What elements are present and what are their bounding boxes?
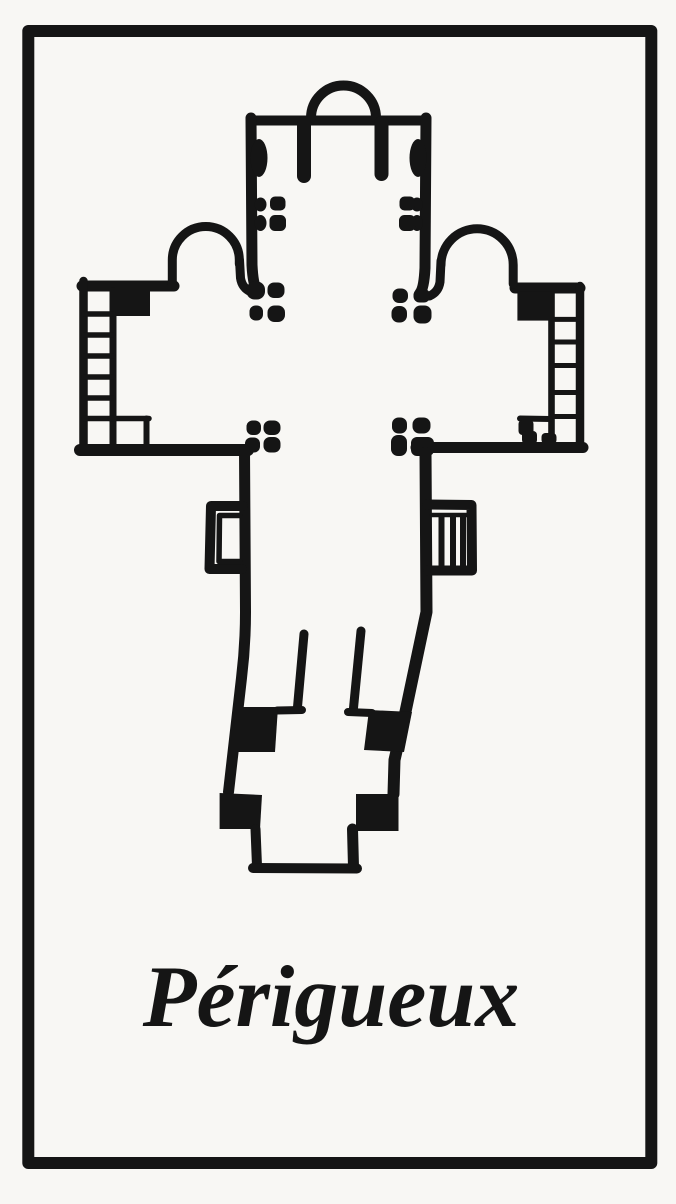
svg-text:Périgueux: Périgueux xyxy=(142,949,519,1046)
